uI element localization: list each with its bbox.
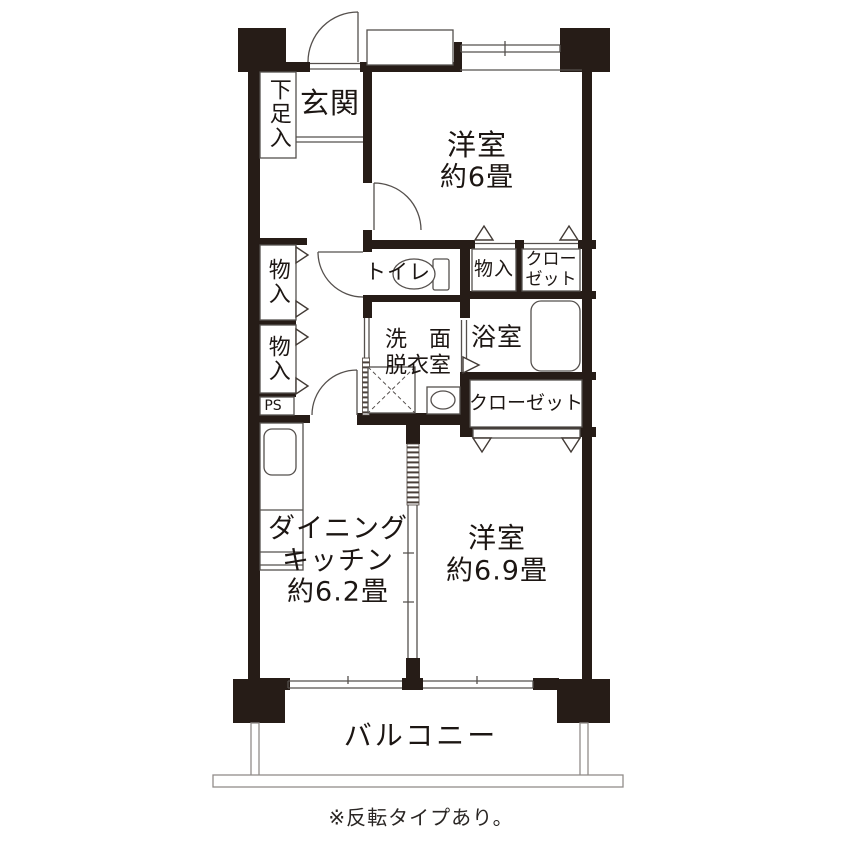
wall-bath-bottom [468,372,596,380]
label-pipe-space: PS [264,398,281,414]
window-top [461,41,560,56]
label-bathroom: 浴室 [471,323,523,352]
label-western-room-2-size: 約6.9畳 [446,556,548,587]
label-dining-kitchen-name: ダイニング キッチン [268,514,408,576]
floor-plan-drawing [0,0,842,842]
label-closet-lower-right: クローゼット [469,392,583,414]
wall-bathcol-upper [460,249,470,318]
wall-right [582,62,592,680]
note-reversed-type: ※反転タイプあり。 [328,806,513,829]
wall-toilet-washroom [363,295,460,302]
label-western-room-1-name: 洋室 [447,128,507,162]
balcony-rail-right [580,723,588,777]
balcony-rail-left [251,723,259,777]
label-washroom: 洗 面 脱衣室 [385,327,451,378]
balcony-edge [213,775,623,787]
closet-lower-door-front [473,429,580,438]
wall-room1-south-c [578,240,596,249]
wall-left [248,62,260,680]
label-western-room-2-name: 洋室 [468,522,526,555]
entrance-door-swing [308,12,358,62]
pillar-bottom-right [557,679,610,723]
bathtub-icon [531,301,580,371]
label-dining-kitchen: ダイニング キッチン 約6.2畳 [268,483,408,640]
wall-divider-stub-bottom [406,658,420,680]
wall-closet-divider [516,249,522,291]
closet-door-marker-icon [473,438,491,452]
wall-divider-stub-top [406,415,420,444]
label-toilet: トイレ [365,260,431,284]
closet-door-marker-icon [475,226,493,240]
toilet-door-swing [318,252,363,297]
wall-room1-south-a [363,240,475,249]
washbasin-bowl-icon [431,391,455,409]
label-western-room-2: 洋室 約6.9畳 [446,491,548,620]
wall-bottom-left [258,678,290,690]
label-storage-upper-right: 物入 [474,258,514,280]
closet-door-marker-icon [560,226,578,240]
bath-door-marker-icon [463,357,479,373]
label-closet-upper-right: クロー ゼット [526,250,577,289]
window-balcony-right [423,676,533,688]
wall-hall-east-a [363,62,372,183]
wall-storage-col-top [248,238,307,245]
label-western-room-1: 洋室 約6畳 [440,95,514,227]
label-dining-kitchen-size: 約6.2畳 [268,577,408,608]
partition-sliding-door [407,444,419,505]
label-entrance: 玄関 [300,87,360,121]
label-storage-left-upper: 物入 [264,258,290,306]
storage-door-marker-icon [296,329,308,345]
meter-box [367,30,453,65]
washroom-slider-track [365,318,370,360]
kitchen-sink-icon [264,429,296,475]
floor-plan: 玄関 下足入 洋室 約6畳 トイレ 物入 クロー ゼット 浴室 洗 面 脱衣室 … [0,0,842,842]
label-balcony: バルコニー [344,720,498,752]
storage-door-marker-icon [296,301,308,317]
wall-bottom-center [402,678,423,690]
dk-door-swing [312,370,357,415]
label-western-room-1-size: 約6畳 [440,162,514,193]
storage-door-marker-icon [296,378,308,394]
room1-door-swing [374,183,421,230]
closet-door-marker-icon [562,438,580,452]
window-balcony-left [288,676,402,688]
wall-bottom-right [533,678,559,690]
label-shoe-box: 下足入 [265,78,291,150]
wall-room1-south-b [515,240,524,249]
storage-door-marker-icon [296,247,308,263]
wall-hall-dk [248,415,310,423]
wall-top-entrance [248,62,310,72]
entrance-door-sill [310,64,360,70]
wall-storage-divider [260,320,296,325]
entrance-step-line [296,137,363,142]
label-storage-left-lower: 物入 [264,335,290,383]
wall-closetrow-bottom [460,291,596,299]
